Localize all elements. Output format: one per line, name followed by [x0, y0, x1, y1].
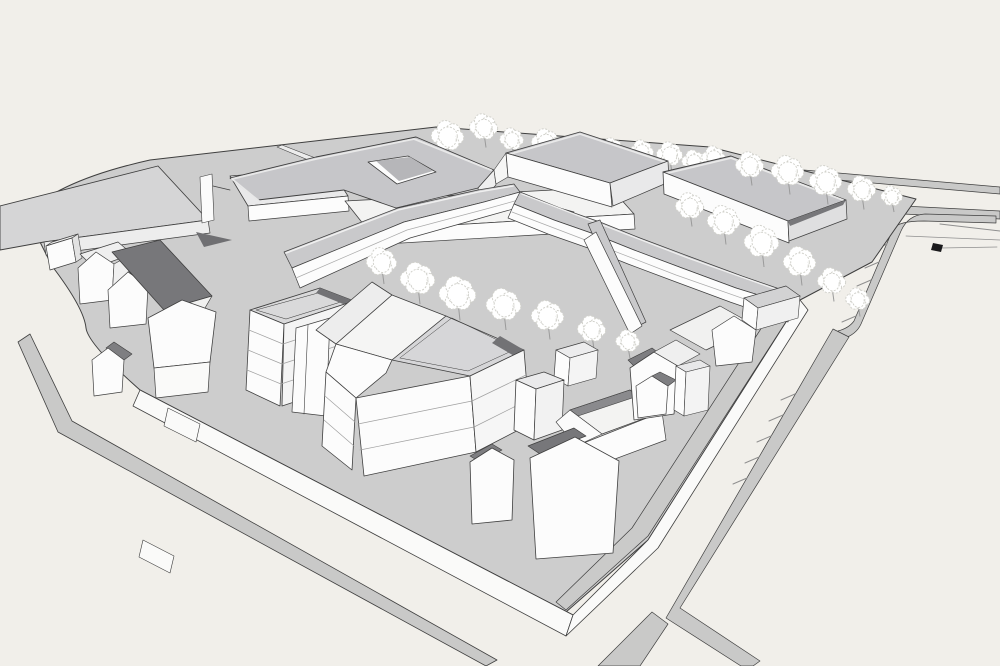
court-trees-tree-foliage — [716, 214, 732, 230]
parking-bay-line — [941, 247, 997, 248]
parked-car — [931, 243, 943, 252]
architectural-massing-render — [0, 0, 1000, 666]
tower-side — [534, 380, 564, 440]
small-house-front — [470, 448, 514, 524]
court-trees-tree-foliage — [855, 183, 869, 197]
court-trees-tree-foliage — [743, 159, 757, 173]
back-trees-tree-foliage — [440, 129, 456, 145]
road-stub-line — [940, 224, 1000, 231]
court-trees-tree-foliage — [818, 174, 834, 190]
court-trees-tree-foliage — [375, 256, 390, 271]
court-trees-tree-foliage — [852, 294, 863, 305]
court-trees-tree-foliage — [754, 235, 771, 252]
fascia-box — [139, 540, 174, 573]
court-trees-tree-foliage — [410, 272, 427, 289]
corner-building-sliver — [200, 174, 214, 223]
court-trees-tree-foliage — [887, 192, 897, 202]
court-trees-tree-foliage — [496, 298, 513, 315]
court-trees-tree-foliage — [825, 275, 839, 289]
corner-spur — [598, 612, 668, 666]
court-trees-tree-foliage — [792, 255, 808, 271]
site-model-viewport — [0, 0, 1000, 666]
court-trees-tree-foliage — [540, 309, 556, 325]
parking-bay-line — [906, 236, 1000, 240]
back-trees-tree-foliage — [477, 121, 491, 135]
shed-side — [684, 366, 710, 416]
big-house-wall — [154, 362, 210, 398]
back-trees-tree-foliage — [664, 149, 676, 161]
block-a-wall-sw — [246, 310, 284, 406]
back-trees-tree-foliage — [506, 134, 517, 145]
tower-front — [514, 380, 536, 440]
gable-house-front — [530, 437, 619, 559]
court-trees-tree-foliage — [683, 200, 697, 214]
court-trees-tree-foliage — [622, 336, 633, 347]
court-trees-tree-foliage — [585, 323, 599, 337]
court-trees-tree-foliage — [449, 286, 467, 304]
court-trees-tree-foliage — [780, 164, 796, 180]
